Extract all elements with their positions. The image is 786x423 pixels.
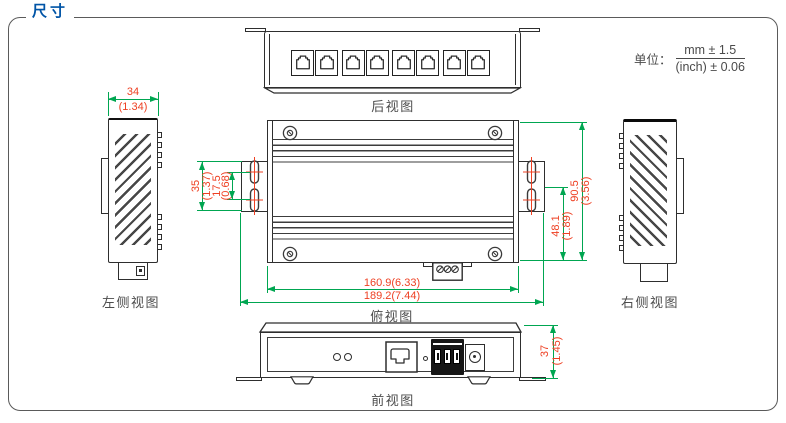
right-din-clip — [676, 158, 684, 214]
left-ext-line-a — [108, 92, 109, 116]
right-side-view-label: 右侧视图 — [600, 292, 700, 311]
right-edge-notches-bottom — [619, 215, 624, 251]
front-terminal-block — [431, 339, 464, 375]
led-indicator-1 — [333, 353, 341, 361]
total-width-ext-right — [543, 213, 544, 306]
terminal-cell — [453, 349, 460, 364]
screw-bottom-left — [282, 246, 298, 262]
depth-inch: (3.56) — [580, 161, 592, 221]
right-vent-slots — [630, 135, 667, 246]
ear-slot-right-upper — [520, 157, 542, 187]
unit-label: 单位： — [634, 49, 672, 68]
ear-slot-left-lower — [243, 185, 265, 215]
top-ridges-upper — [272, 139, 513, 166]
left-edge-notches-bottom — [157, 214, 162, 250]
terminal-flank-right — [462, 262, 472, 267]
rear-mount-tab-left — [245, 28, 266, 32]
unit-inch-tolerance: (inch) ± 0.06 — [676, 59, 745, 74]
body-width-text: 160.9(6.33) — [332, 277, 452, 289]
edge-notch — [619, 235, 624, 241]
depth-ext-bottom — [520, 260, 587, 261]
rj45-port — [392, 50, 415, 76]
edge-notch — [157, 142, 162, 148]
edge-notch — [619, 245, 624, 251]
body-width-ext-right — [518, 266, 519, 293]
edge-notch — [157, 224, 162, 230]
front-height-mm: 37 — [539, 321, 551, 381]
edge-notch — [619, 153, 624, 159]
edge-notch — [619, 163, 624, 169]
front-foot-tab-left — [290, 376, 314, 385]
front-view-label: 前视图 — [343, 390, 443, 409]
dimensions-diagram: 尺寸 单位： mm ± 1.5 (inch) ± 0.06 后视图 34 (1.… — [0, 0, 786, 423]
edge-notch — [619, 133, 624, 139]
left-connector-dot — [139, 269, 142, 272]
left-vent-slots — [115, 134, 151, 245]
left-width-dim-line — [108, 99, 158, 100]
screw-top-left — [282, 125, 298, 141]
unit-fraction: mm ± 1.5 (inch) ± 0.06 — [676, 43, 745, 74]
depth-ext-top — [520, 122, 587, 123]
rear-inner-line-left — [269, 34, 270, 85]
rear-inner-line-right — [515, 34, 516, 85]
terminal-cell — [444, 349, 451, 364]
terminal-cell — [434, 349, 441, 364]
left-edge-notches-top — [157, 132, 162, 168]
rj45-port — [443, 50, 466, 76]
right-edge-notches-top — [619, 133, 624, 169]
rear-mount-tab-right — [519, 28, 540, 32]
led-indicator-2 — [344, 353, 352, 361]
unit-note: 单位： mm ± 1.5 (inch) ± 0.06 — [634, 43, 745, 74]
edge-notch — [157, 132, 162, 138]
front-rj45-port — [385, 341, 418, 373]
left-ext-line-b — [158, 92, 159, 116]
edge-notch — [157, 214, 162, 220]
ear-slot-right-lower — [520, 185, 542, 215]
front-height-inch: (1.45) — [551, 321, 563, 381]
top-inner-line-right — [513, 121, 514, 262]
screw-top-right — [487, 125, 503, 141]
edge-notch — [157, 152, 162, 158]
dc-jack — [465, 344, 485, 371]
right-bottom-connector — [640, 263, 668, 282]
reset-hole — [423, 356, 428, 361]
front-foot-tab-right — [467, 376, 491, 385]
total-width-ext-left — [240, 213, 241, 306]
screw-bottom-right — [487, 246, 503, 262]
edge-notch — [619, 143, 624, 149]
edge-notch — [619, 215, 624, 221]
rj45-port-row — [291, 50, 490, 76]
edge-notch — [157, 162, 162, 168]
rj45-port — [291, 50, 314, 76]
slot-pitch-inch: (0.68) — [220, 156, 232, 216]
rj45-port — [467, 50, 490, 76]
edge-notch — [619, 225, 624, 231]
left-side-view-label: 左侧视图 — [81, 292, 181, 311]
total-width-dim-line — [240, 302, 543, 303]
rj45-port — [366, 50, 389, 76]
rj45-port — [416, 50, 439, 76]
rear-view-label: 后视图 — [343, 96, 443, 115]
rj45-port — [342, 50, 365, 76]
section-title: 尺寸 — [26, 3, 74, 21]
rj45-port — [315, 50, 338, 76]
rear-bottom-bevel — [263, 87, 522, 95]
left-width-inch: (1.34) — [103, 101, 163, 113]
unit-mm-tolerance: mm ± 1.5 — [676, 43, 745, 59]
top-ridges-lower — [272, 216, 513, 243]
edge-notch — [157, 244, 162, 250]
slot-pitch-dim-line — [232, 172, 233, 199]
front-flange-left — [236, 377, 262, 381]
total-width-text: 189.2(7.44) — [332, 290, 452, 302]
edge-notch — [157, 234, 162, 240]
